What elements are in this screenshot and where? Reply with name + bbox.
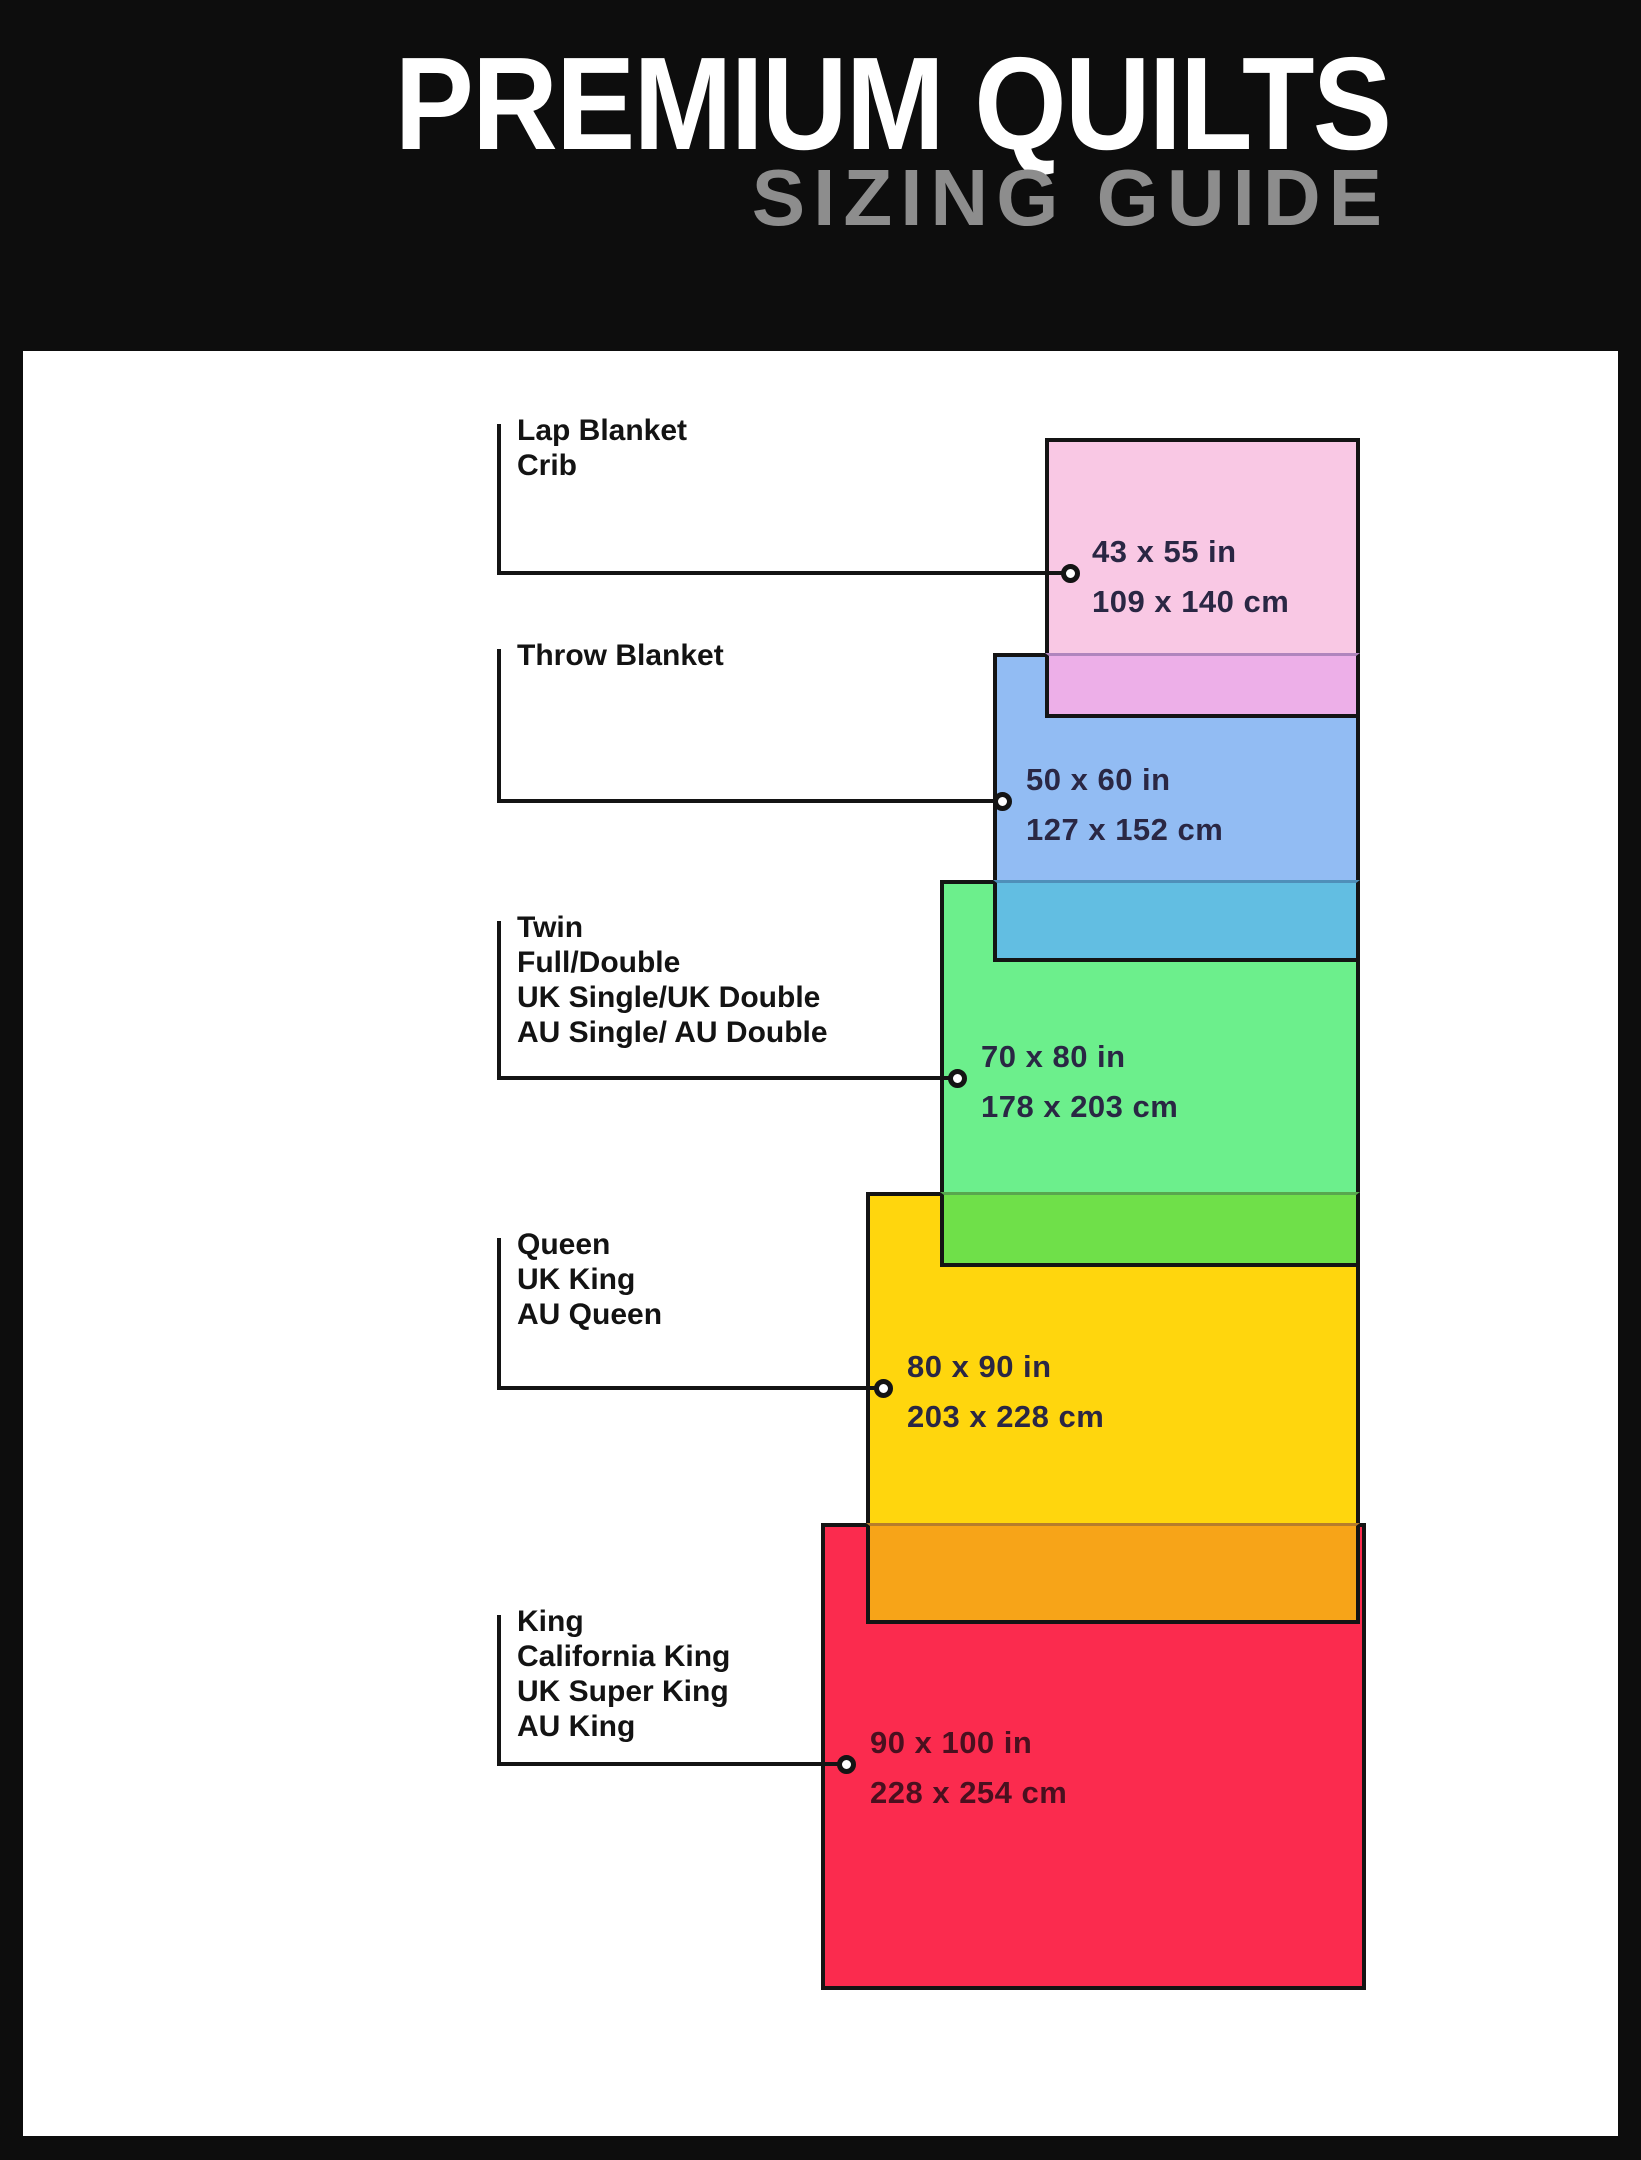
dimension-line: 43 x 55 in [1092,527,1289,577]
size-name-line: UK Super King [517,1674,730,1709]
size-name-line: Twin [517,910,828,945]
connector-tick-throw-blanket [497,649,501,803]
connector-tick-lap-blanket-crib [497,424,501,575]
size-name-label-king: KingCalifornia KingUK Super KingAU King [517,1604,730,1744]
size-name-label-lap-blanket-crib: Lap BlanketCrib [517,413,687,483]
connector-dot-icon [993,792,1012,811]
size-name-line: Throw Blanket [517,638,724,673]
size-name-label-twin-full-double: TwinFull/DoubleUK Single/UK DoubleAU Sin… [517,910,828,1050]
connector-dot-icon [1061,564,1080,583]
connector-line-queen [497,1386,883,1390]
connector-dot-icon [948,1069,967,1088]
connector-line-twin-full-double [497,1076,957,1080]
size-name-line: Full/Double [517,945,828,980]
overlap-band-lap-blanket-crib [1045,653,1360,718]
connector-line-king [497,1762,846,1766]
connector-dot-icon [837,1755,856,1774]
size-name-label-queen: QueenUK KingAU Queen [517,1227,662,1332]
size-name-line: Lap Blanket [517,413,687,448]
connector-line-lap-blanket-crib [497,571,1070,575]
connector-dot-icon [874,1379,893,1398]
size-name-line: California King [517,1639,730,1674]
dimension-line: 228 x 254 cm [870,1768,1067,1818]
connector-line-throw-blanket [497,799,1002,803]
size-name-label-throw-blanket: Throw Blanket [517,638,724,673]
dimension-line: 80 x 90 in [907,1342,1104,1392]
dimension-line: 178 x 203 cm [981,1082,1178,1132]
dimension-line: 50 x 60 in [1026,755,1223,805]
dimension-label-lap-blanket-crib: 43 x 55 in109 x 140 cm [1092,527,1289,627]
overlap-band-throw-blanket [993,880,1360,962]
size-name-line: King [517,1604,730,1639]
dimension-line: 203 x 228 cm [907,1392,1104,1442]
size-name-line: AU King [517,1709,730,1744]
dimension-line: 127 x 152 cm [1026,805,1223,855]
dimension-label-twin-full-double: 70 x 80 in178 x 203 cm [981,1032,1178,1132]
dimension-label-queen: 80 x 90 in203 x 228 cm [907,1342,1104,1442]
size-name-line: Queen [517,1227,662,1262]
page-title: PREMIUM QUILTS [284,38,1390,170]
overlap-band-queen [866,1523,1360,1624]
dimension-line: 109 x 140 cm [1092,577,1289,627]
connector-tick-king [497,1615,501,1766]
connector-tick-twin-full-double [497,921,501,1080]
size-name-line: AU Queen [517,1297,662,1332]
size-name-line: Crib [517,448,687,483]
dimension-label-king: 90 x 100 in228 x 254 cm [870,1718,1067,1818]
overlap-band-twin-full-double [940,1192,1360,1267]
size-name-line: AU Single/ AU Double [517,1015,828,1050]
dimension-line: 90 x 100 in [870,1718,1067,1768]
page-subtitle: SIZING GUIDE [752,158,1390,238]
size-name-line: UK Single/UK Double [517,980,828,1015]
dimension-label-throw-blanket: 50 x 60 in127 x 152 cm [1026,755,1223,855]
sizing-guide-infographic: PREMIUM QUILTS SIZING GUIDE Lap BlanketC… [0,0,1641,2160]
size-name-line: UK King [517,1262,662,1297]
dimension-line: 70 x 80 in [981,1032,1178,1082]
connector-tick-queen [497,1238,501,1390]
